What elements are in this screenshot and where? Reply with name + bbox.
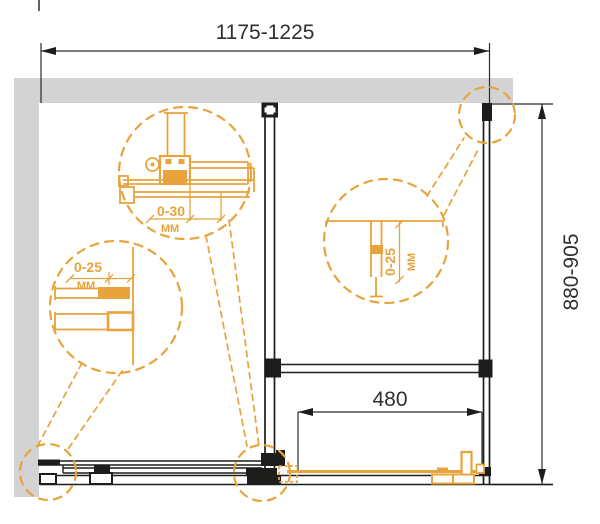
wall-top [14,78,513,103]
detail-back-unit-label: MM [406,253,418,271]
depth-dimension: 880-905 [487,104,583,485]
detail-top-range-label: 0-30 [157,203,185,219]
detail-back-profile: 0-25 MM [326,220,443,297]
detail-circle-left-profile [50,241,182,373]
detail-left-profile: 0-25 MM [55,247,135,365]
detail-left-unit-label: MM [77,280,95,292]
door-width-dimension: 480 [298,388,482,470]
dimension-drawing: 1175-1225 880-905 480 [0,0,600,524]
depth-dimension-label: 880-905 [560,233,583,310]
support-bar [265,359,493,378]
door-width-label: 480 [372,388,407,411]
detail-top-unit-label: MM [161,223,179,235]
detail-back-range-label: 0-25 [382,248,398,276]
center-glass-profile [262,103,279,481]
width-dimension-label: 1175-1225 [216,21,315,44]
right-glass-profile [482,103,492,484]
wall-left [14,78,39,497]
detail-circle-back-profile [324,179,448,303]
detail-left-range-label: 0-25 [74,259,102,275]
sliding-door-panel [279,452,484,484]
